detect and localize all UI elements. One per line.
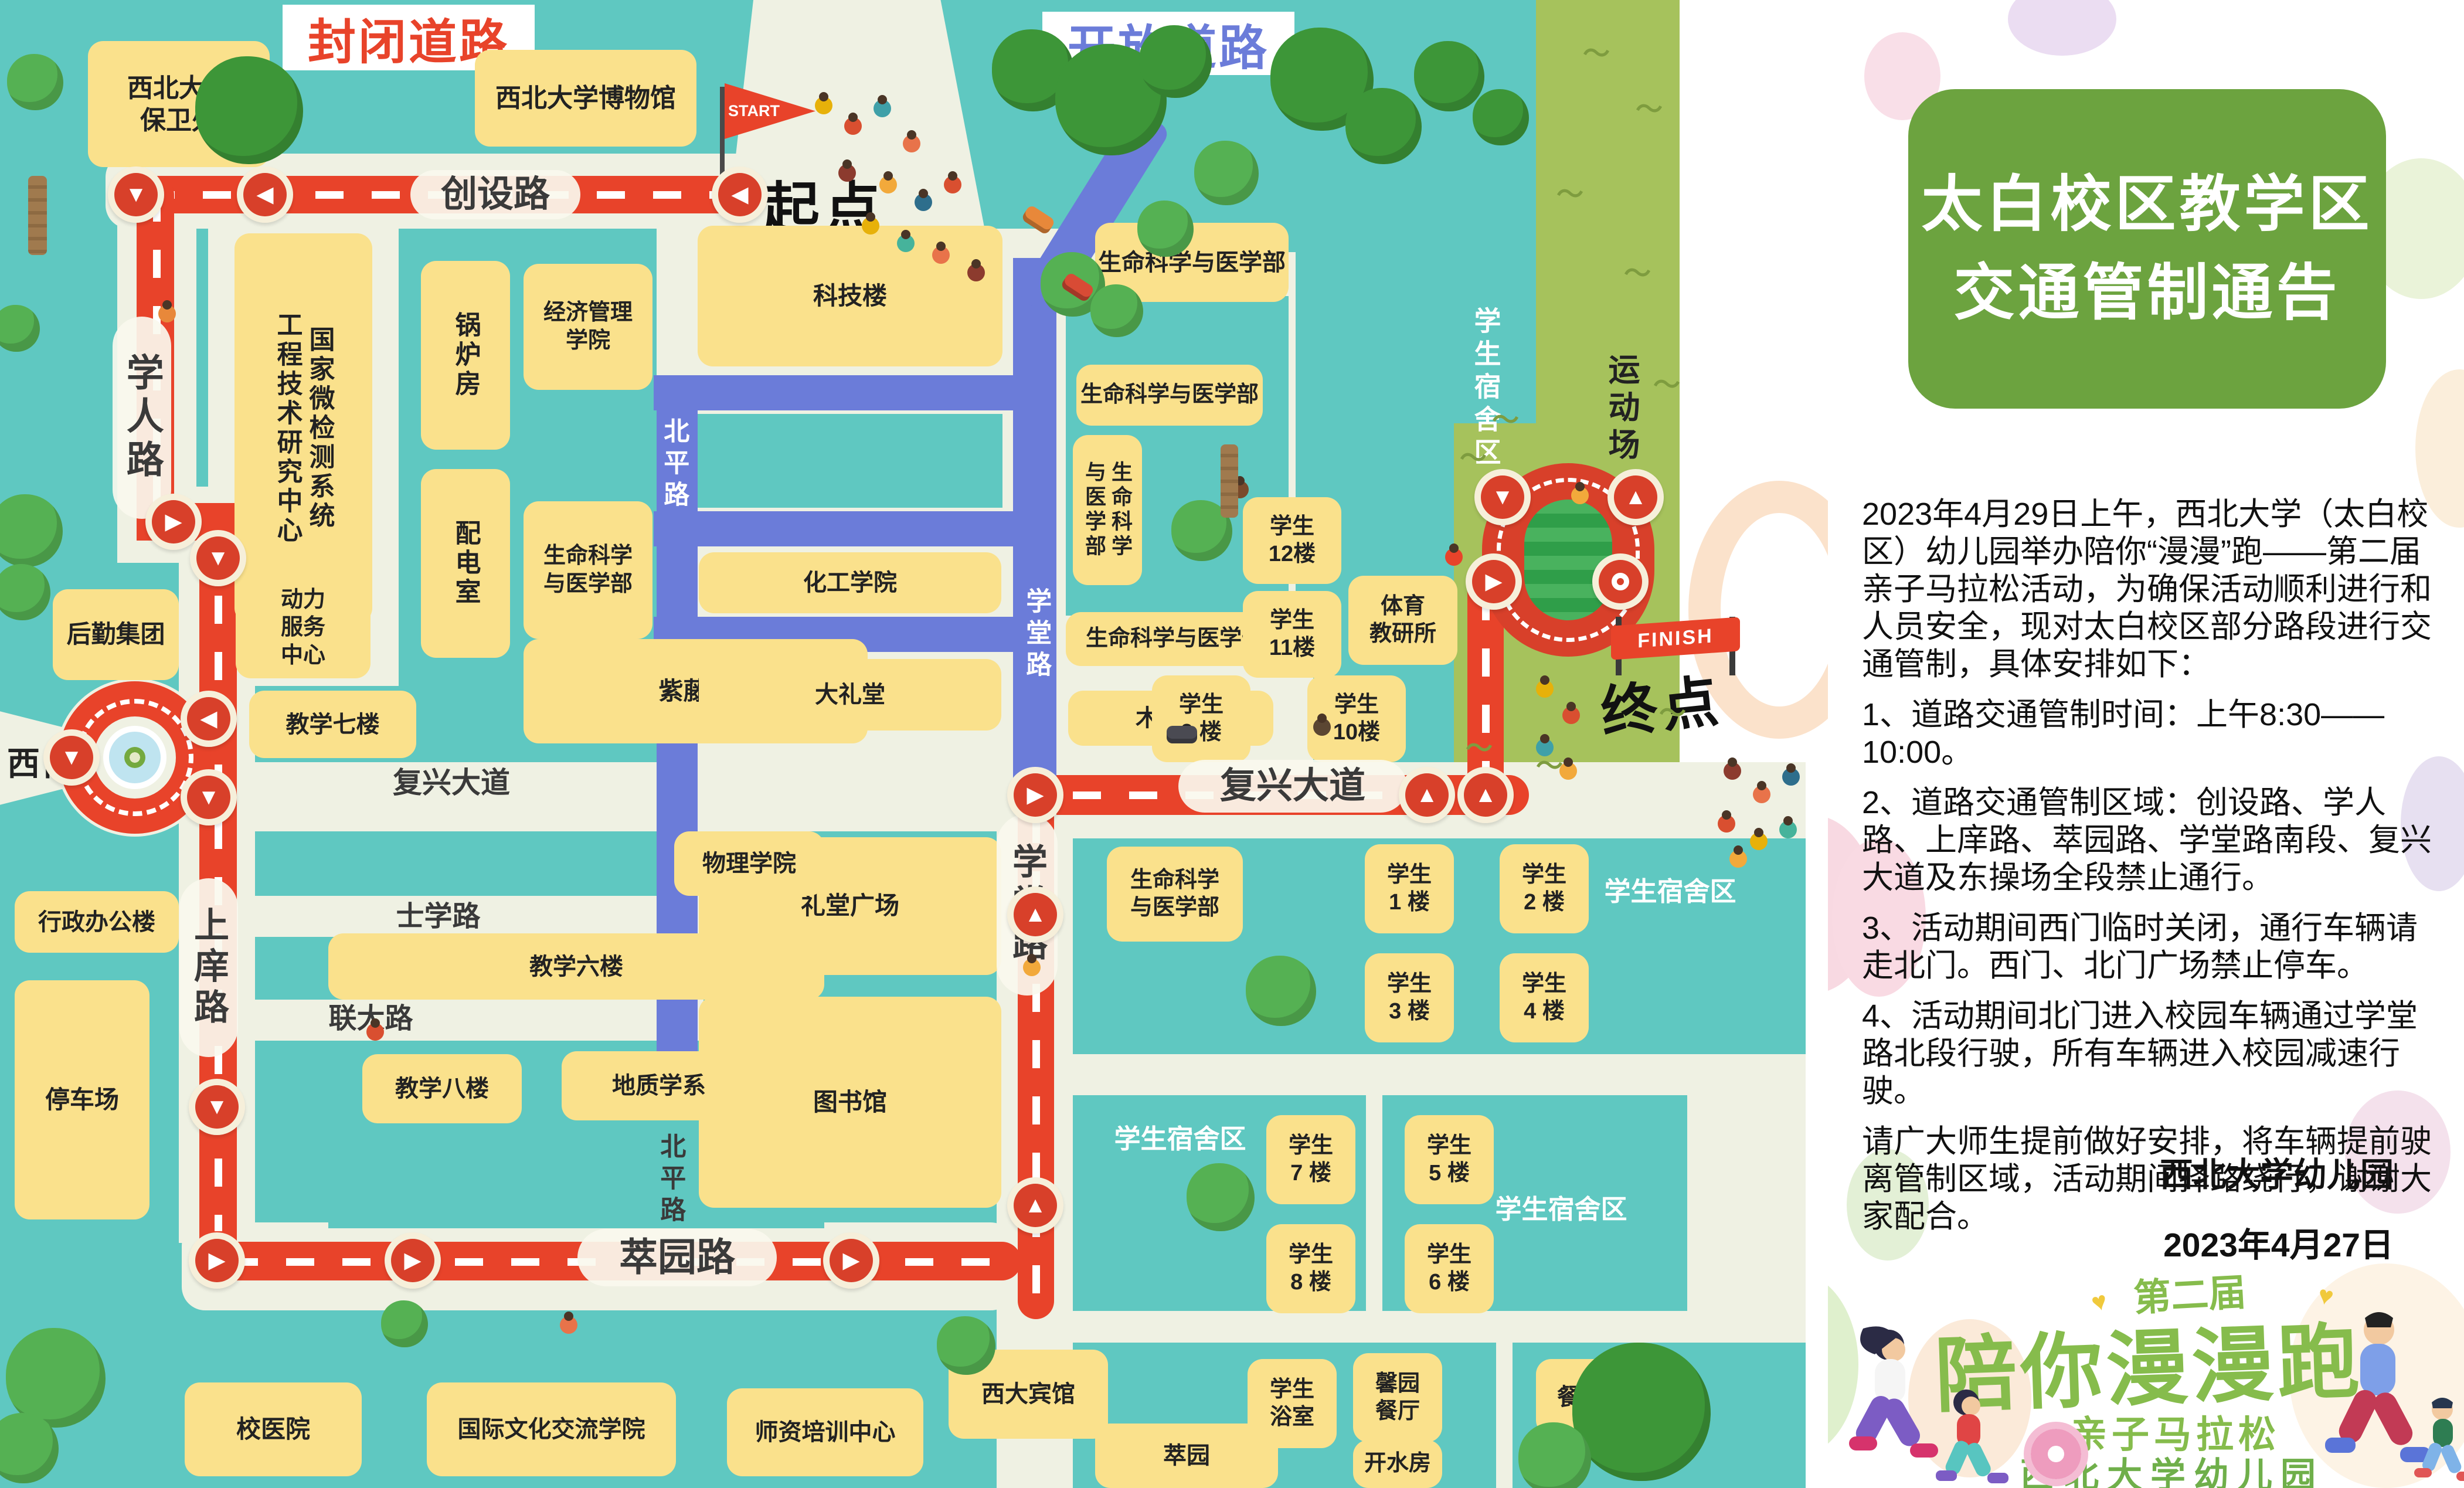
- tree-icon: [195, 56, 303, 164]
- person-icon: [815, 97, 832, 114]
- grass-icon: 〜: [1624, 252, 1651, 291]
- person-icon: [1750, 833, 1768, 850]
- bush-icon: [1246, 956, 1316, 1026]
- tree-icon: [1414, 41, 1484, 111]
- traffic-control-poster: FINISH 终点 START 起点 北门 西门 封闭道路 开放道路 西北大学 …: [0, 0, 2464, 1488]
- bush-icon: [381, 1300, 428, 1347]
- bush-icon: [1187, 1163, 1255, 1231]
- grass-icon: 〜: [1659, 692, 1686, 731]
- notice-date: 2023年4月27日: [2163, 1218, 2394, 1266]
- tree-icon: [1345, 88, 1422, 164]
- person-icon: [1724, 762, 1741, 780]
- grass-icon: 〜: [1556, 173, 1583, 212]
- notice-panel: 太白校区教学区 交通管制通告 2023年4月29日上午，西北大学（太白校区）幼儿…: [1828, 0, 2464, 1488]
- notice-paragraph: 3、活动期间西门临时关闭，通行车辆请走北门。西门、北门广场禁止停车。: [1862, 909, 2439, 984]
- person-icon: [879, 176, 897, 193]
- grass-icon: 〜: [1583, 32, 1610, 71]
- bush-icon: [0, 305, 40, 352]
- person-icon: [874, 100, 891, 117]
- person-icon: [1718, 815, 1735, 833]
- person-icon: [844, 117, 862, 135]
- person-icon: [1753, 786, 1770, 803]
- person-icon: [158, 305, 176, 322]
- person-icon: [1562, 706, 1580, 724]
- person-icon: [932, 246, 950, 264]
- notice-signature: 西北大学幼儿园: [2160, 1148, 2394, 1196]
- grass-icon: 〜: [1636, 88, 1663, 127]
- person-icon: [1536, 680, 1554, 698]
- notice-body: 2023年4月29日上午，西北大学（太白校区）幼儿园举办陪你“漫漫”跑——第二届…: [1862, 495, 2439, 1248]
- person-icon: [862, 217, 879, 235]
- bench-icon: [28, 176, 47, 255]
- person-icon: [838, 164, 856, 182]
- person-icon: [1023, 959, 1041, 976]
- tree-icon: [1473, 89, 1529, 145]
- bush-icon: [7, 54, 63, 110]
- car-icon: [1167, 726, 1197, 743]
- person-icon: [1445, 548, 1463, 566]
- bench-icon: [1221, 444, 1238, 518]
- runner-girl-icon: [1922, 1384, 2027, 1488]
- bush-icon: [1194, 141, 1259, 205]
- car-icon: [1021, 204, 1056, 235]
- person-icon: [903, 135, 920, 152]
- person-icon: [1779, 821, 1797, 838]
- notice-paragraph: 4、活动期间北门进入校园车辆通过学堂路北段行驶，所有车辆进入校园减速行驶。: [1862, 997, 2439, 1110]
- person-icon: [897, 235, 915, 252]
- bush-icon: [937, 1316, 995, 1375]
- notice-paragraph: 1、道路交通管制时间：上午8:30——10:00。: [1862, 696, 2439, 771]
- person-icon: [366, 1023, 384, 1041]
- person-icon: [944, 176, 961, 193]
- person-icon: [1313, 718, 1331, 736]
- tree-icon: [1139, 25, 1212, 98]
- bush-icon: [1090, 284, 1143, 337]
- grass-icon: 〜: [1492, 399, 1519, 437]
- bush-icon: [1137, 201, 1194, 257]
- person-icon: [1729, 850, 1747, 868]
- person-icon: [1782, 768, 1800, 786]
- grass-icon: 〜: [1536, 745, 1563, 783]
- person-icon: [967, 264, 985, 281]
- campus-map: FINISH 终点 START 起点 北门 西门 封闭道路 开放道路 西北大学 …: [0, 0, 1828, 1488]
- notice-paragraph: 2、道路交通管制区域：创设路、学人路、上庠路、萃园路、学堂路南段、复兴大道及东操…: [1862, 784, 2439, 896]
- person-icon: [560, 1316, 577, 1334]
- person-icon: [915, 193, 932, 211]
- grass-icon: 〜: [1460, 437, 1487, 475]
- notice-title-line1: 太白校区教学区: [1921, 161, 2373, 249]
- notice-title-line2: 交通管制通告: [1953, 249, 2340, 338]
- decor-blob: [2008, 0, 2116, 56]
- tree-icon: [1572, 1343, 1711, 1481]
- grass-icon: 〜: [1466, 727, 1493, 766]
- notice-title-box: 太白校区教学区 交通管制通告: [1908, 89, 2386, 409]
- notice-paragraph: 2023年4月29日上午，西北大学（太白校区）幼儿园举办陪你“漫漫”跑——第二届…: [1862, 495, 2439, 683]
- person-icon: [1571, 487, 1589, 504]
- runner-boy-icon: [2402, 1395, 2464, 1488]
- bush-icon: [0, 564, 50, 620]
- grass-icon: 〜: [1653, 363, 1680, 402]
- decor-layer: 〜〜〜〜〜〜〜〜〜〜: [0, 0, 1828, 1488]
- logo-flower-icon: [2024, 1422, 2088, 1486]
- bush-icon: [0, 494, 63, 567]
